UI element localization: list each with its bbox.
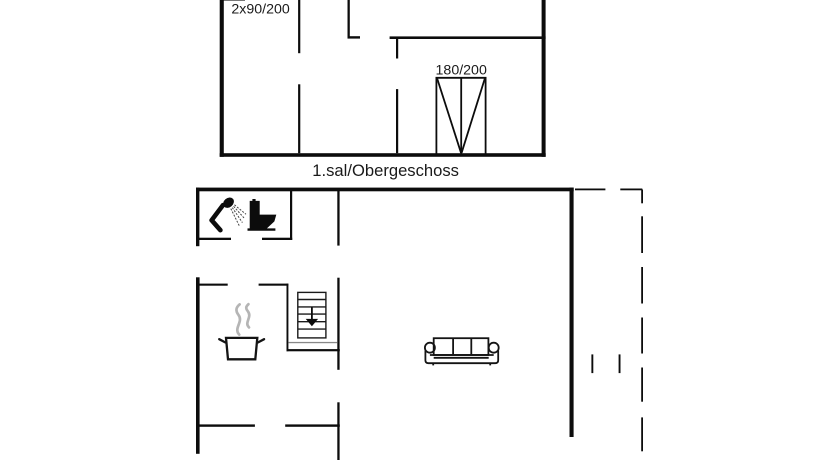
svg-text:180/200: 180/200 xyxy=(436,62,487,78)
svg-text:2x90/200: 2x90/200 xyxy=(231,1,289,17)
svg-text:1.sal/Obergeschoss: 1.sal/Obergeschoss xyxy=(312,161,459,180)
